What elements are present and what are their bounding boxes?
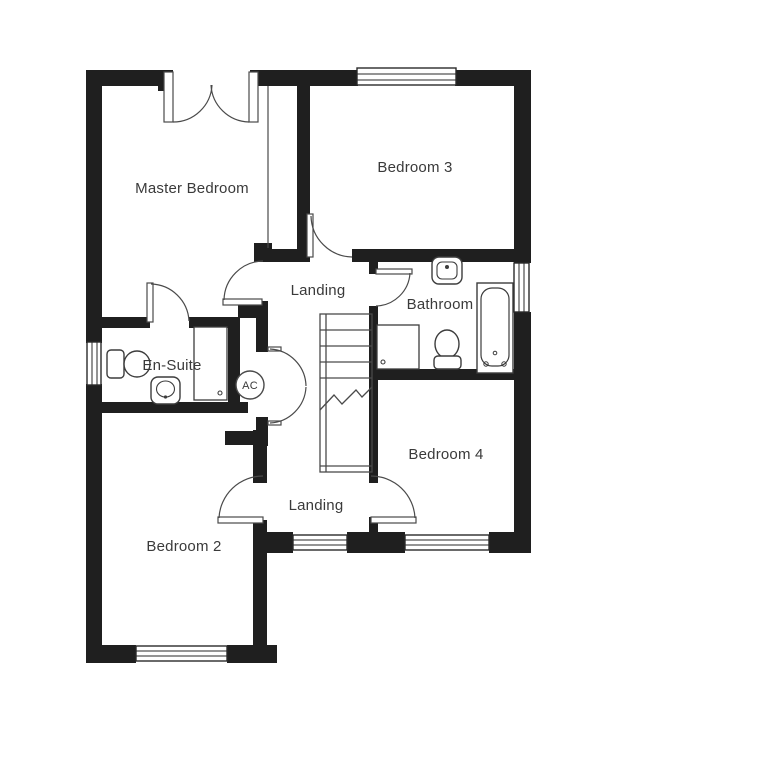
window bbox=[405, 535, 489, 550]
airing-cupboard-label: AC bbox=[242, 380, 258, 392]
airing-cupboard-doors bbox=[268, 347, 306, 425]
room-label-bedroom-2: Bedroom 2 bbox=[146, 538, 221, 555]
room-label-master-bedroom: Master Bedroom bbox=[135, 180, 249, 197]
wall-segment bbox=[256, 417, 268, 446]
french-doors bbox=[164, 72, 258, 122]
room-label-landing-upper: Landing bbox=[291, 282, 346, 299]
window bbox=[514, 263, 529, 312]
stair-outline bbox=[320, 314, 372, 472]
window bbox=[87, 342, 101, 385]
door-swing-arc bbox=[311, 216, 352, 257]
door-swing-arc bbox=[270, 349, 306, 386]
wall-segment bbox=[228, 317, 240, 413]
wash-basin-icon bbox=[151, 377, 180, 404]
shower-enclosure-icon bbox=[377, 325, 419, 369]
toilet-icon bbox=[434, 330, 461, 369]
door-swing-arc bbox=[173, 85, 212, 122]
wall-segment bbox=[514, 312, 531, 553]
floor-plan-page: AC bbox=[0, 0, 768, 768]
room-label-bedroom-3: Bedroom 3 bbox=[377, 159, 452, 176]
wall-segment bbox=[347, 532, 405, 553]
door-swing-arc bbox=[151, 284, 189, 321]
room-label-bathroom: Bathroom bbox=[407, 296, 474, 313]
wall-segment bbox=[86, 70, 102, 343]
master-bedroom-door bbox=[223, 261, 263, 305]
en-suite-door bbox=[147, 283, 189, 322]
door-swing-arc bbox=[270, 387, 306, 423]
bedroom-4-door bbox=[371, 476, 416, 523]
door-swing-arc bbox=[211, 85, 249, 122]
wall-segment bbox=[250, 70, 358, 86]
room-label-en-suite: En-Suite bbox=[142, 357, 201, 374]
door-leaf bbox=[218, 517, 263, 523]
door-leaf bbox=[371, 517, 416, 523]
wall-segment bbox=[253, 532, 293, 553]
door-leaf bbox=[307, 214, 313, 257]
room-label-landing-lower: Landing bbox=[289, 497, 344, 514]
wall-segment bbox=[227, 645, 277, 663]
room-label-bedroom-4: Bedroom 4 bbox=[408, 446, 483, 463]
bedroom-3-door bbox=[307, 214, 352, 257]
door-leaf bbox=[223, 299, 262, 305]
floor-plan-drawing: AC bbox=[0, 0, 768, 768]
stair-break-line bbox=[320, 387, 372, 410]
bedroom-2-door bbox=[218, 476, 263, 523]
door-swing-arc bbox=[224, 261, 263, 300]
window bbox=[293, 535, 347, 550]
window bbox=[357, 68, 456, 85]
wall-segment bbox=[86, 384, 102, 663]
bath-icon bbox=[477, 283, 513, 373]
door-leaf bbox=[376, 269, 412, 274]
window bbox=[136, 646, 227, 661]
wall-segment bbox=[86, 645, 136, 663]
door-swing-arc bbox=[376, 273, 410, 306]
door-leaf bbox=[147, 283, 153, 322]
wall-segment bbox=[256, 301, 268, 352]
wall-segment bbox=[102, 317, 150, 328]
staircase bbox=[320, 314, 372, 472]
door-leaf bbox=[164, 72, 173, 122]
wash-basin-icon bbox=[432, 257, 462, 284]
door-leaf bbox=[249, 72, 258, 122]
wall-segment bbox=[489, 532, 530, 553]
wall-segment bbox=[514, 70, 531, 263]
